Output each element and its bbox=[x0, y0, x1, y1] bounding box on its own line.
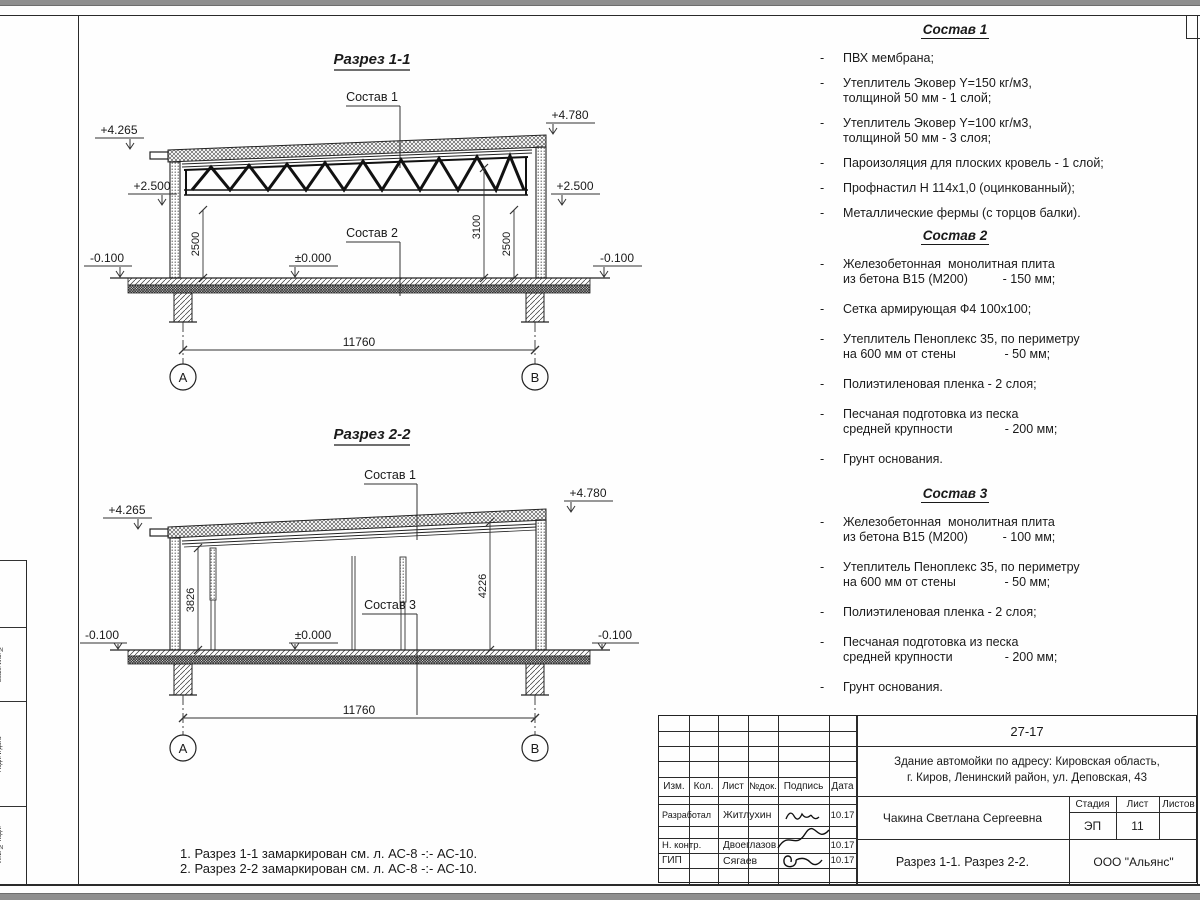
foundation bbox=[169, 664, 197, 695]
tb-date: 10.17 bbox=[829, 838, 856, 853]
list-item: -Утеплитель Эковер Y=100 кг/м3,толщиной … bbox=[820, 116, 1130, 146]
svg-text:+4.265: +4.265 bbox=[100, 123, 137, 137]
list-item: -Металлические фермы (с торцов балки). bbox=[820, 206, 1130, 221]
svg-text:-0.100: -0.100 bbox=[85, 628, 119, 642]
list-item: -Утеплитель Пеноплекс 35, по периметруна… bbox=[820, 560, 1130, 590]
list-item: -Песчаная подготовка из пескасредней кру… bbox=[820, 407, 1130, 437]
section-2-2-drawing: Разрез 2-2 Состав 1 bbox=[80, 420, 655, 765]
list-item: -Сетка армирующая Ф4 100х100; bbox=[820, 302, 1130, 317]
sheets-label: Листов bbox=[1159, 796, 1198, 812]
company-name: ООО "Альянс" bbox=[1069, 839, 1198, 884]
composition-list-3: Состав 3 -Железобетонная монолитная плит… bbox=[820, 486, 1130, 695]
eave-overhang bbox=[150, 152, 168, 159]
tb-col-izm: Изм. bbox=[659, 777, 689, 796]
window-bottom-edge bbox=[0, 893, 1200, 900]
window-top-edge bbox=[0, 0, 1200, 6]
side-strip-divider bbox=[0, 701, 26, 702]
list-item: -Полиэтиленовая пленка - 2 слоя; bbox=[820, 605, 1130, 620]
sheets-value bbox=[1159, 812, 1198, 839]
side-strip-label: Инв. № подл. bbox=[0, 809, 11, 881]
note-line: 2. Разрез 2-2 замаркирован см. л. АС-8 -… bbox=[180, 861, 477, 876]
foundation bbox=[521, 293, 549, 322]
vertical-dimension: 2500 bbox=[190, 206, 207, 282]
svg-text:3100: 3100 bbox=[471, 215, 483, 239]
list-item: -Железобетонная монолитная плитаиз бетон… bbox=[820, 257, 1130, 287]
svg-text:±0.000: ±0.000 bbox=[295, 628, 332, 642]
svg-text:2500: 2500 bbox=[190, 232, 202, 256]
section-1-1-drawing: Разрез 1-1 Состав 1 bbox=[80, 45, 655, 395]
project-name: Здание автомойки по адресу: Кировская об… bbox=[856, 746, 1198, 796]
svg-text:Состав 1: Состав 1 bbox=[346, 90, 398, 104]
tb-date: 10.17 bbox=[829, 853, 856, 868]
roof-slab bbox=[150, 135, 546, 167]
composition-heading: Состав 2 bbox=[820, 228, 1090, 244]
side-strip-border bbox=[26, 560, 27, 884]
side-strip-label: Взам. инв. № bbox=[0, 629, 11, 699]
axis-marker-a: А bbox=[170, 735, 196, 761]
svg-text:В: В bbox=[531, 370, 540, 385]
svg-text:±0.000: ±0.000 bbox=[295, 251, 332, 265]
floor-slab bbox=[110, 650, 610, 664]
tb-col-list: Лист bbox=[718, 777, 748, 796]
signature bbox=[780, 806, 827, 825]
svg-text:Разрез 1-1: Разрез 1-1 bbox=[333, 51, 410, 68]
svg-text:2500: 2500 bbox=[501, 232, 513, 256]
svg-text:А: А bbox=[179, 741, 188, 756]
drawing-name: Разрез 1-1. Разрез 2-2. bbox=[856, 839, 1069, 884]
side-strip-divider bbox=[0, 627, 26, 628]
svg-text:+4.780: +4.780 bbox=[569, 486, 606, 500]
frame-top bbox=[0, 15, 1200, 16]
composition-heading: Состав 1 bbox=[820, 22, 1090, 38]
list-item: -Песчаная подготовка из пескасредней кру… bbox=[820, 635, 1130, 665]
signature bbox=[777, 852, 829, 872]
floor-slab bbox=[110, 278, 610, 293]
foundation bbox=[169, 293, 197, 322]
list-item: -Грунт основания. bbox=[820, 452, 1130, 467]
list-item: -Пароизоляция для плоских кровель - 1 сл… bbox=[820, 156, 1130, 171]
composition-heading: Состав 3 bbox=[820, 486, 1090, 502]
tb-col-ndok: №док. bbox=[748, 777, 778, 796]
sheet-label: Лист bbox=[1116, 796, 1159, 812]
vertical-dimension: 3100 bbox=[471, 164, 488, 282]
left-wall bbox=[170, 538, 180, 650]
elevation-mark: +4.265 bbox=[103, 503, 152, 529]
vertical-dimension: 2500 bbox=[501, 206, 518, 282]
project-code: 27-17 bbox=[856, 716, 1198, 746]
tb-col-kol: Кол. bbox=[689, 777, 718, 796]
svg-text:-0.100: -0.100 bbox=[90, 251, 124, 265]
svg-text:Разрез 2-2: Разрез 2-2 bbox=[333, 426, 411, 443]
note-line: 1. Разрез 1-1 замаркирован см. л. АС-8 -… bbox=[180, 846, 477, 861]
signature bbox=[775, 824, 833, 852]
svg-text:-0.100: -0.100 bbox=[598, 628, 632, 642]
eave-overhang bbox=[150, 529, 168, 536]
svg-text:+2.500: +2.500 bbox=[133, 179, 170, 193]
right-wall bbox=[536, 147, 546, 278]
roof-slab bbox=[150, 509, 546, 547]
elevation-mark: -0.100 bbox=[592, 628, 639, 649]
author-name: Чакина Светлана Сергеевна bbox=[856, 796, 1069, 839]
svg-text:Состав 2: Состав 2 bbox=[346, 226, 398, 240]
elevation-mark: +2.500 bbox=[551, 179, 600, 205]
svg-text:11760: 11760 bbox=[343, 703, 376, 717]
truss-web bbox=[192, 156, 524, 190]
tb-name: Сягаев bbox=[720, 853, 781, 868]
list-item: -Профнастил Н 114х1,0 (оцинкованный); bbox=[820, 181, 1130, 196]
svg-text:-0.100: -0.100 bbox=[600, 251, 634, 265]
axis-marker-a: А bbox=[170, 364, 196, 390]
list-item: -Железобетонная монолитная плитаиз бетон… bbox=[820, 515, 1130, 545]
tb-col-data: Дата bbox=[829, 777, 856, 796]
tb-col-podpis: Подпись bbox=[778, 777, 829, 796]
svg-text:11760: 11760 bbox=[343, 335, 376, 349]
label-sostav-1: Состав 1 bbox=[364, 468, 417, 540]
svg-text:+4.780: +4.780 bbox=[551, 108, 588, 122]
svg-text:Состав 1: Состав 1 bbox=[364, 468, 416, 482]
elevation-mark: +4.780 bbox=[564, 486, 613, 512]
elevation-mark: -0.100 bbox=[84, 251, 132, 277]
tb-name: Житлухин bbox=[720, 804, 781, 826]
drawing-sheet: Взам. инв. № Подп. и дата Инв. № подл. Р… bbox=[0, 0, 1200, 900]
tb-role: ГИП bbox=[659, 853, 721, 868]
list-item: -Утеплитель Эковер Y=150 кг/м3,толщиной … bbox=[820, 76, 1130, 106]
elevation-mark: -0.100 bbox=[80, 628, 127, 649]
section-title: Разрез 1-1 bbox=[333, 51, 410, 70]
frame-bottom bbox=[0, 884, 1200, 886]
stage-label: Стадия bbox=[1069, 796, 1116, 812]
list-item: -ПВХ мембрана; bbox=[820, 51, 1130, 66]
svg-text:4226: 4226 bbox=[477, 574, 489, 598]
sheet-value: 11 bbox=[1116, 812, 1159, 839]
left-wall bbox=[170, 162, 180, 278]
drawing-notes: 1. Разрез 1-1 замаркирован см. л. АС-8 -… bbox=[180, 846, 477, 877]
elevation-mark: ±0.000 bbox=[289, 628, 338, 649]
svg-text:В: В bbox=[531, 741, 540, 756]
tb-role: Разработал bbox=[659, 804, 721, 826]
elevation-mark: -0.100 bbox=[593, 251, 642, 277]
svg-text:+4.265: +4.265 bbox=[108, 503, 145, 517]
stage-value: ЭП bbox=[1069, 812, 1116, 839]
composition-list-1: Состав 1 -ПВХ мембрана; -Утеплитель Эков… bbox=[820, 22, 1130, 221]
svg-text:3826: 3826 bbox=[185, 588, 197, 612]
span-dimension: 11760 bbox=[179, 695, 539, 735]
side-strip-label: Подп. и дата bbox=[0, 704, 11, 804]
title-block: Изм. Кол. Лист №док. Подпись Дата Разраб… bbox=[658, 715, 1197, 883]
list-item: -Грунт основания. bbox=[820, 680, 1130, 695]
vertical-dimension: 3826 bbox=[185, 544, 202, 654]
list-item: -Утеплитель Пеноплекс 35, по периметруна… bbox=[820, 332, 1130, 362]
corner-stamp-box bbox=[1186, 16, 1200, 39]
side-strip-divider bbox=[0, 560, 26, 561]
axis-marker-b: В bbox=[522, 364, 548, 390]
tb-date: 10.17 bbox=[829, 804, 856, 826]
tb-name: Двоеглазов bbox=[720, 838, 781, 853]
svg-text:Состав 3: Состав 3 bbox=[364, 598, 416, 612]
vertical-dimension: 4226 bbox=[477, 518, 494, 654]
tb-role: Н. контр. bbox=[659, 838, 721, 853]
interior-partition bbox=[352, 556, 355, 650]
section-title: Разрез 2-2 bbox=[333, 426, 411, 445]
svg-text:А: А bbox=[179, 370, 188, 385]
side-strip-divider bbox=[0, 806, 26, 807]
span-dimension: 11760 bbox=[179, 322, 539, 364]
elevation-mark: ±0.000 bbox=[289, 251, 338, 277]
right-wall bbox=[536, 520, 546, 650]
interior-column bbox=[210, 548, 216, 650]
composition-list-2: Состав 2 -Железобетонная монолитная плит… bbox=[820, 228, 1130, 467]
list-item: -Полиэтиленовая пленка - 2 слоя; bbox=[820, 377, 1130, 392]
elevation-mark: +4.780 bbox=[546, 108, 595, 134]
svg-text:+2.500: +2.500 bbox=[556, 179, 593, 193]
axis-marker-b: В bbox=[522, 735, 548, 761]
foundation bbox=[521, 664, 549, 695]
elevation-mark: +4.265 bbox=[95, 123, 144, 149]
